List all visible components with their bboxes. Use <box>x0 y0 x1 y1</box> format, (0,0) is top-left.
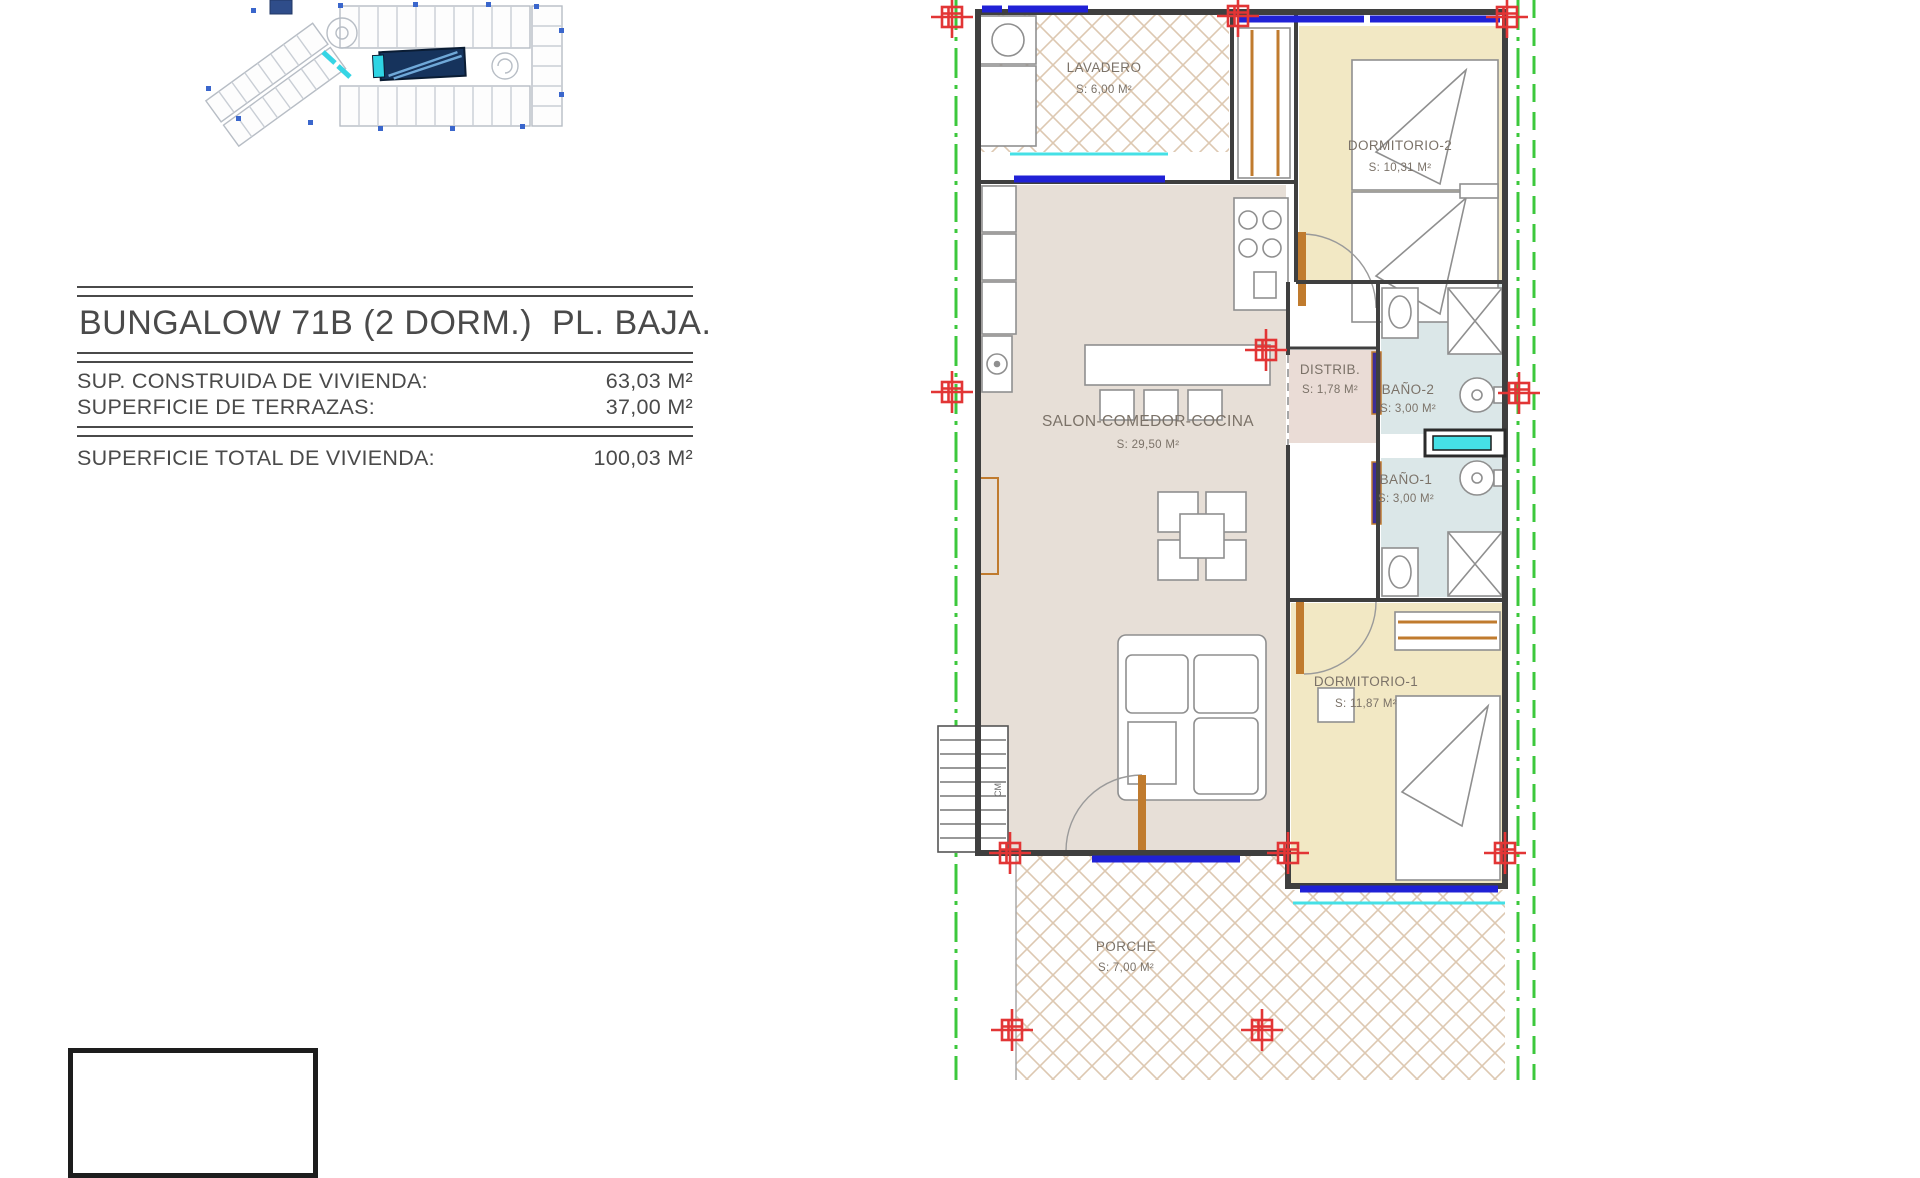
stair-label: CM <box>993 783 1003 797</box>
kitchen-island <box>1085 345 1270 385</box>
room-label: DORMITORIO-2 <box>1348 138 1452 153</box>
area-row: SUPERFICIE DE TERRAZAS: 37,00 M² <box>77 394 693 420</box>
room-area: S: 6,00 M² <box>1076 84 1132 96</box>
area-row-total: SUPERFICIE TOTAL DE VIVIENDA: 100,03 M² <box>77 437 693 471</box>
room-label: BAÑO-2 <box>1382 382 1435 397</box>
title-block: BUNGALOW 71B (2 DORM.) PL. BAJA. SUP. CO… <box>77 286 693 471</box>
area-value: 37,00 M² <box>606 394 693 420</box>
room-area: S: 29,50 M² <box>1117 439 1180 451</box>
room-area: S: 11,87 M² <box>1335 698 1397 710</box>
wardrobe-column <box>1238 28 1290 178</box>
room-label: DORMITORIO-1 <box>1314 674 1418 689</box>
legend-box <box>68 1048 318 1178</box>
room-area: S: 3,00 M² <box>1380 403 1436 415</box>
double-rule <box>77 286 693 297</box>
room-label: PORCHE <box>1096 939 1156 954</box>
floor-plan: LAVADERO S: 6,00 M² DORMITORIO-2 S: 10,3… <box>930 0 1610 1080</box>
dormitorio-2-door <box>1298 232 1306 306</box>
area-value: 63,03 M² <box>606 368 693 394</box>
double-rule <box>77 352 693 363</box>
double-rule <box>77 426 693 437</box>
site-plan-thumbnail <box>190 0 580 150</box>
laundry-cabinet <box>980 66 1036 146</box>
room-area: S: 7,00 M² <box>1098 962 1154 974</box>
highlighted-unit <box>270 0 292 14</box>
room-area: S: 10,31 M² <box>1369 162 1432 174</box>
room-label: LAVADERO <box>1067 60 1142 75</box>
room-area: S: 3,00 M² <box>1378 493 1434 505</box>
room-label: DISTRIB. <box>1300 362 1360 377</box>
bathroom-window <box>1425 430 1505 456</box>
area-label: SUP. CONSTRUIDA DE VIVIENDA: <box>77 368 428 394</box>
pool <box>372 48 465 81</box>
wardrobe-dormitorio-1 <box>1395 612 1500 650</box>
area-label: SUPERFICIE DE TERRAZAS: <box>77 394 375 420</box>
entrance-door <box>1138 775 1146 851</box>
area-label: SUPERFICIE TOTAL DE VIVIENDA: <box>77 445 435 471</box>
plan-title: BUNGALOW 71B (2 DORM.) PL. BAJA. <box>77 297 693 352</box>
room-label: SALON-COMEDOR-COCINA <box>1042 413 1254 430</box>
room-label: BAÑO-1 <box>1380 472 1433 487</box>
room-area: S: 1,78 M² <box>1302 384 1358 396</box>
area-row: SUP. CONSTRUIDA DE VIVIENDA: 63,03 M² <box>77 368 693 394</box>
spiral-ramp <box>492 53 518 79</box>
area-value: 100,03 M² <box>593 445 693 471</box>
dormitorio-1-door <box>1296 602 1304 674</box>
